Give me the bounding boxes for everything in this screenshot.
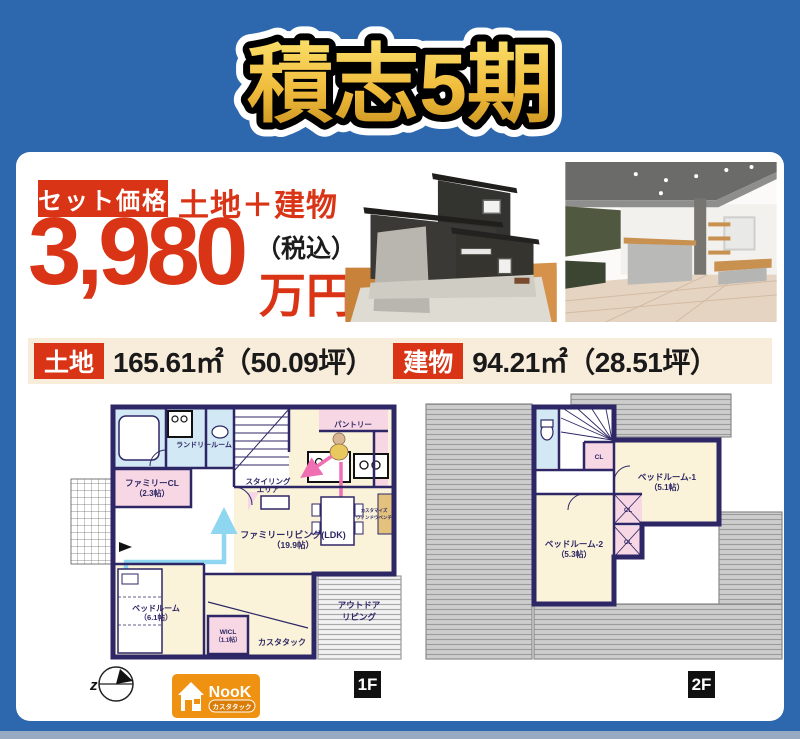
bathtub bbox=[119, 416, 159, 460]
bench-label-2: ウィンドウベンチ bbox=[356, 514, 392, 521]
laundry-sink-unit bbox=[168, 411, 192, 437]
kitchen-counter-plan bbox=[308, 452, 388, 482]
land-value: 165.61㎡（50.09坪） bbox=[113, 341, 373, 381]
family-cl-size: （2.3帖） bbox=[134, 488, 169, 498]
green-wall-panel bbox=[565, 206, 620, 256]
floor-badge-2f: 2F bbox=[688, 671, 715, 698]
interior-window bbox=[724, 217, 754, 249]
bench-label-1: カスタマイズ bbox=[361, 507, 388, 514]
styling-label-2: エリア bbox=[257, 485, 280, 494]
exterior-art bbox=[345, 162, 557, 322]
interior-column bbox=[694, 198, 706, 274]
main-title: 積志5期 積志5期 積志5期 bbox=[120, 18, 680, 148]
bedroom-label: ベッドルーム bbox=[132, 604, 180, 613]
compass-art: z bbox=[82, 662, 142, 708]
compass-letter: z bbox=[89, 677, 98, 694]
brand-logo: NooK カスタタック bbox=[172, 674, 260, 718]
outdoor-label-1: アウトドア bbox=[338, 600, 381, 610]
compass: z bbox=[82, 662, 142, 708]
content-card: セット価格 土地＋建物 3,980 （税込） 万円 bbox=[16, 152, 784, 721]
bedroom2-2f bbox=[534, 494, 614, 604]
floorplan-1f-art: ランドリールーム ファミリーCL （2.3帖） パントリー スタイリング エリア… bbox=[56, 392, 421, 667]
floorplan-2f: CL CL CL ベッドルーム-1 （5.1帖） ベッドルーム-2 （5.3帖） bbox=[424, 392, 784, 667]
toilet-icon bbox=[541, 420, 553, 440]
logo-brand-text: NooK bbox=[209, 684, 252, 701]
ldk-label: ファミリーリビング(LDK) bbox=[240, 529, 346, 540]
exterior-photo bbox=[345, 162, 557, 322]
footer-strip bbox=[0, 731, 800, 739]
brand-logo-art: NooK カスタタック bbox=[172, 674, 260, 718]
wicl-label: WICL bbox=[220, 629, 237, 636]
bedroom1-label: ベッドルーム-1 bbox=[638, 472, 697, 482]
logo-tagline-text: カスタタック bbox=[213, 702, 252, 711]
outdoor-label-2: リビング bbox=[342, 612, 377, 622]
building-badge: 建物 bbox=[393, 343, 463, 379]
interior-art bbox=[565, 162, 777, 322]
price-unit: 万円 bbox=[259, 257, 353, 326]
ldk-size: （19.9帖） bbox=[272, 540, 314, 550]
building-value: 94.21㎡（28.51坪） bbox=[472, 341, 717, 381]
pantry-label: パントリー bbox=[334, 419, 372, 429]
bedroom1-size: （5.1帖） bbox=[649, 482, 684, 492]
bedroom2-size: （5.3帖） bbox=[556, 549, 591, 559]
entrance-arrow bbox=[119, 542, 132, 552]
wash-basin bbox=[212, 426, 228, 438]
closet-low-label: CL bbox=[624, 540, 632, 546]
closet-mid-label: CL bbox=[624, 508, 632, 514]
price-amount: 3,980 bbox=[28, 199, 243, 305]
wicl-size: （1.1帖） bbox=[215, 636, 241, 644]
interior-photo bbox=[565, 162, 777, 322]
entrance-porch bbox=[71, 479, 111, 564]
styling-counter bbox=[261, 496, 289, 509]
floorplan-1f: ランドリールーム ファミリーCL （2.3帖） パントリー スタイリング エリア… bbox=[56, 392, 421, 667]
kitchen-counter bbox=[628, 243, 692, 285]
family-closet bbox=[113, 469, 191, 507]
bedroom2-label: ベッドルーム-2 bbox=[545, 539, 604, 549]
closet-top-label: CL bbox=[595, 454, 604, 461]
laundry-label: ランドリールーム bbox=[176, 441, 232, 449]
area-bar: 土地 165.61㎡（50.09坪） 建物 94.21㎡（28.51坪） bbox=[28, 338, 772, 384]
title-art: 積志5期 積志5期 積志5期 bbox=[120, 18, 680, 148]
flyer-page: 積志5期 積志5期 積志5期 セット価格 土地＋建物 3,980 （税込） 万円 bbox=[0, 0, 800, 739]
land-badge: 土地 bbox=[34, 343, 104, 379]
family-cl-label: ファミリーCL bbox=[125, 478, 179, 488]
custom-tuck-label: カスタタック bbox=[258, 637, 306, 647]
floorplan-2f-art: CL CL CL ベッドルーム-1 （5.1帖） ベッドルーム-2 （5.3帖） bbox=[424, 392, 784, 667]
title-text: 積志5期 bbox=[247, 37, 553, 133]
bedroom-size: （6.1帖） bbox=[140, 612, 173, 622]
floor-badge-1f: 1F bbox=[354, 671, 381, 698]
